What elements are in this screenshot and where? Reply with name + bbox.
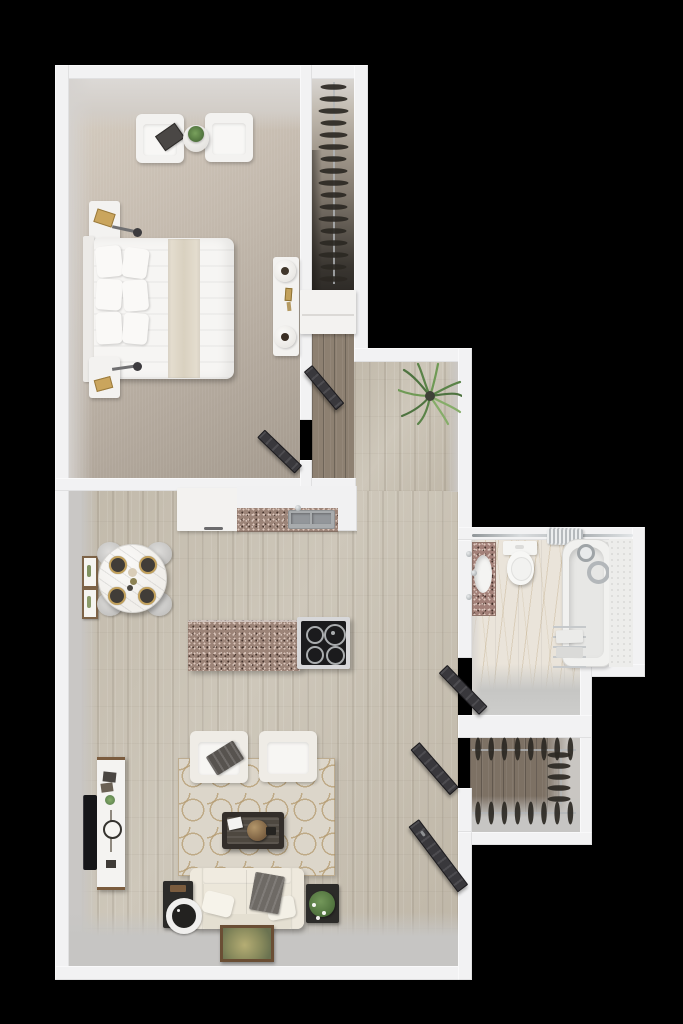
- perfume-bottle: [287, 302, 292, 311]
- cabinet-handle: [204, 527, 223, 530]
- bedroom-closet-rod-hangers: [311, 80, 355, 286]
- botanical-print: [87, 565, 91, 577]
- bed-pillow: [94, 245, 123, 279]
- bed-pillow: [122, 312, 150, 345]
- decor-box: [106, 860, 116, 868]
- counter-shadow: [237, 531, 357, 535]
- armchair-seat: [212, 123, 246, 155]
- candle: [281, 267, 289, 275]
- bed-pillow: [95, 311, 123, 344]
- wall-right-lower: [458, 832, 472, 980]
- hand-shower: [587, 561, 610, 584]
- wall-hall-top: [354, 348, 472, 362]
- wall-bath-walkin-divider: [458, 715, 592, 738]
- white-flower: [316, 916, 320, 920]
- kitchen-sink: [288, 510, 335, 529]
- flush-button: [515, 545, 524, 549]
- botanical-print: [87, 596, 91, 608]
- side-table: [163, 881, 193, 928]
- armchair-seat: [267, 742, 309, 774]
- toilet-bowl: [507, 551, 534, 585]
- sink-basin: [291, 513, 310, 524]
- decor-tray: [266, 827, 276, 835]
- coffee-table: [222, 812, 284, 849]
- toilet-seat: [511, 557, 532, 581]
- bed-pillow: [121, 246, 150, 279]
- wall-left: [55, 65, 69, 980]
- burner: [326, 646, 345, 665]
- wall-closet-right: [354, 65, 368, 362]
- towel: [556, 647, 583, 658]
- perfume-bottle: [285, 288, 293, 301]
- bed-pillow: [95, 278, 123, 311]
- bedroom-armchair: [205, 113, 253, 162]
- kitchen-counter-end-panel: [338, 486, 357, 531]
- wall-top: [55, 65, 368, 79]
- succulent-plant: [105, 795, 115, 805]
- photo-frame: [103, 771, 117, 782]
- cabinet-shelf-line: [302, 314, 354, 316]
- door-handle: [420, 830, 426, 837]
- sink-basin: [312, 513, 331, 524]
- place-setting: [108, 587, 126, 605]
- place-setting: [139, 556, 157, 574]
- closet-doorway-floor: [312, 333, 354, 491]
- table-centerpiece: [127, 585, 133, 591]
- kitchen-faucet: [295, 505, 301, 511]
- white-flower: [312, 903, 316, 907]
- bed-pillow: [122, 279, 150, 312]
- sofa: [190, 868, 304, 929]
- leaning-art: [220, 925, 274, 962]
- table-centerpiece: [130, 578, 137, 585]
- shower-head: [577, 544, 595, 562]
- walkin-side-rod-hangers: [544, 748, 576, 806]
- wall-sconce: [466, 594, 472, 600]
- lamp-head: [133, 228, 142, 237]
- rattan-sphere: [247, 820, 268, 841]
- wall-bottom: [55, 966, 472, 980]
- wall-sconce: [466, 551, 472, 557]
- shower-tile-wall: [609, 539, 633, 667]
- burner-center: [331, 631, 335, 635]
- vanity-faucet: [471, 570, 477, 576]
- burner: [306, 646, 324, 664]
- living-armchair: [259, 731, 317, 782]
- clock: [103, 820, 122, 839]
- wall-frame: [82, 588, 98, 619]
- wall-frame: [82, 556, 98, 588]
- towel: [556, 630, 583, 644]
- white-flower: [322, 911, 326, 915]
- speaker-dot: [177, 909, 180, 912]
- photo-frame: [100, 782, 113, 793]
- wall-walkin-right: [580, 664, 592, 845]
- wall-bath-right: [632, 527, 645, 677]
- table-centerpiece: [128, 568, 137, 577]
- wall-walkin-bottom: [458, 832, 592, 845]
- potted-plant: [188, 126, 204, 142]
- cooktop: [301, 621, 346, 665]
- wood-tray: [170, 885, 186, 892]
- kitchen-tall-cabinet: [177, 488, 238, 531]
- wall-tv: [83, 795, 97, 870]
- media-console: [97, 757, 125, 890]
- burner: [324, 624, 346, 646]
- ring-speaker: [166, 898, 202, 934]
- candle: [281, 333, 289, 341]
- lamp-head: [133, 362, 142, 371]
- towel-ladder: [553, 626, 586, 671]
- burner: [306, 626, 324, 644]
- place-setting: [138, 587, 156, 605]
- hall-palm-plant: [398, 362, 462, 428]
- floorplan-render: [0, 0, 683, 1024]
- kitchen-island: [188, 620, 300, 671]
- place-setting: [109, 556, 127, 574]
- sofa-seat-divider: [246, 870, 247, 914]
- bed-throw: [168, 239, 200, 378]
- closet-cabinet: [300, 290, 356, 334]
